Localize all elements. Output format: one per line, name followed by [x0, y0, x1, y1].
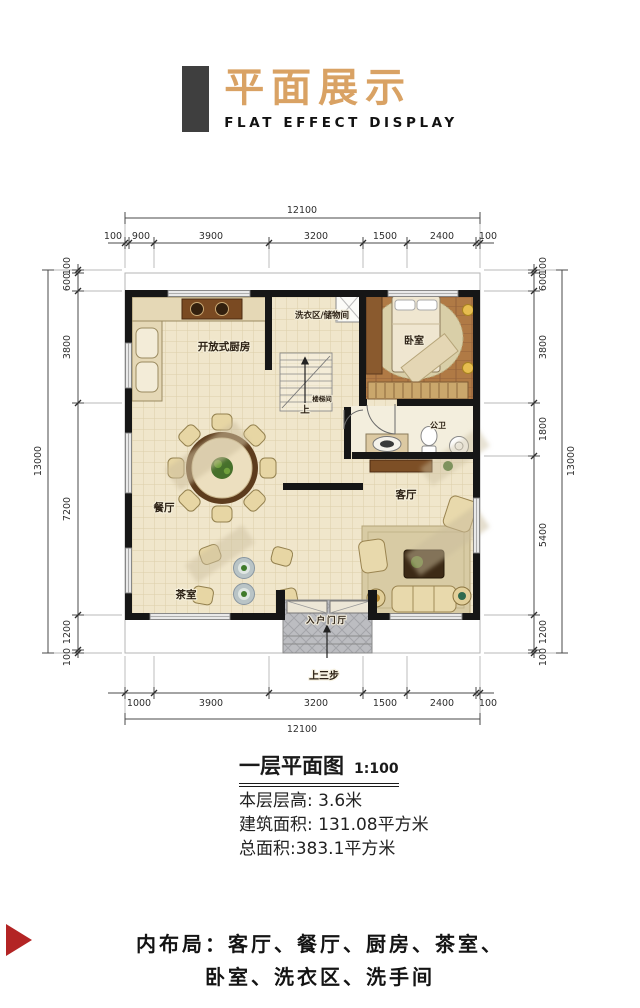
dim-top-seg: 100 — [104, 231, 122, 242]
dim-right-seg: 1200 — [538, 620, 549, 644]
plan-caption-title: 一层平面图 — [239, 750, 344, 780]
label-dining: 餐厅 — [153, 501, 175, 514]
dim-top-seg: 100 — [479, 231, 497, 242]
floor-plan-svg: 12100 100 900 3900 3200 1500 2400 100 10… — [0, 198, 640, 758]
plan-info: 本层层高: 3.6米 建筑面积: 131.08平方米 总面积:383.1平方米 — [239, 789, 429, 861]
footer-line-2: 卧室、洗衣区、洗手间 — [0, 961, 640, 994]
dim-right-seg: 3800 — [538, 335, 549, 359]
page-title: 平面展示 — [224, 66, 458, 110]
dim-bottom-seg: 1000 — [127, 698, 151, 709]
dim-left-total: 13000 — [33, 446, 44, 476]
label-bathroom: 公卫 — [430, 421, 446, 430]
plan-caption: 一层平面图 1:100 — [239, 750, 399, 787]
info-build-area: 建筑面积: 131.08平方米 — [239, 813, 429, 837]
dim-top-seg: 2400 — [430, 231, 454, 242]
dim-right-seg: 100 — [538, 257, 549, 275]
label-living: 客厅 — [395, 488, 417, 501]
dim-bottom-seg: 3900 — [199, 698, 223, 709]
dim-left-seg: 100 — [62, 648, 73, 666]
dim-right-seg: 100 — [538, 648, 549, 666]
label-bedroom: 卧室 — [404, 334, 424, 347]
dim-left-seg: 1200 — [62, 620, 73, 644]
header-text: 平面展示 FLAT EFFECT DISPLAY — [224, 66, 458, 131]
entry-porch — [283, 600, 372, 658]
label-stairwell: 楼梯间 — [312, 394, 332, 403]
header-accent-bar — [182, 66, 209, 132]
label-kitchen: 开放式厨房 — [198, 340, 251, 353]
dim-bottom-seg: 3200 — [304, 698, 328, 709]
label-laundry: 洗衣区/储物间 — [295, 310, 349, 321]
dim-right-seg: 5400 — [538, 523, 549, 547]
dim-left-seg: 600 — [62, 273, 73, 291]
dim-bottom-seg: 100 — [479, 698, 497, 709]
info-floor-height: 本层层高: 3.6米 — [239, 789, 429, 813]
footer-line-1: 内布局：客厅、餐厅、厨房、茶室、 — [0, 928, 640, 961]
dim-right-seg: 1800 — [538, 417, 549, 441]
dim-left-seg: 3800 — [62, 335, 73, 359]
label-tea: 茶室 — [175, 588, 197, 601]
label-stairs-up: 上 — [300, 404, 310, 416]
dim-right-seg: 600 — [538, 273, 549, 291]
dim-top-seg: 3200 — [304, 231, 328, 242]
page-subtitle: FLAT EFFECT DISPLAY — [224, 115, 458, 131]
dim-top-seg: 3900 — [199, 231, 223, 242]
dim-left-seg: 7200 — [62, 497, 73, 521]
dim-right-total: 13000 — [566, 446, 577, 476]
poster-page: 平面展示 FLAT EFFECT DISPLAY — [0, 0, 640, 1008]
dim-bottom-seg: 1500 — [373, 698, 397, 709]
label-entry: 入户门厅 — [305, 615, 348, 626]
footer-layout-note: 内布局：客厅、餐厅、厨房、茶室、 卧室、洗衣区、洗手间 — [0, 928, 640, 994]
plan-caption-scale: 1:100 — [354, 761, 399, 777]
header: 平面展示 FLAT EFFECT DISPLAY — [0, 66, 640, 132]
dim-top-seg: 1500 — [373, 231, 397, 242]
dim-top-total: 12100 — [287, 205, 317, 216]
dim-left-seg: 100 — [62, 257, 73, 275]
dim-bottom-total: 12100 — [287, 724, 317, 735]
dim-top-seg: 900 — [132, 231, 150, 242]
dim-bottom-seg: 2400 — [430, 698, 454, 709]
label-steps: 上三步 — [309, 669, 339, 682]
info-total-area: 总面积:383.1平方米 — [239, 837, 429, 861]
